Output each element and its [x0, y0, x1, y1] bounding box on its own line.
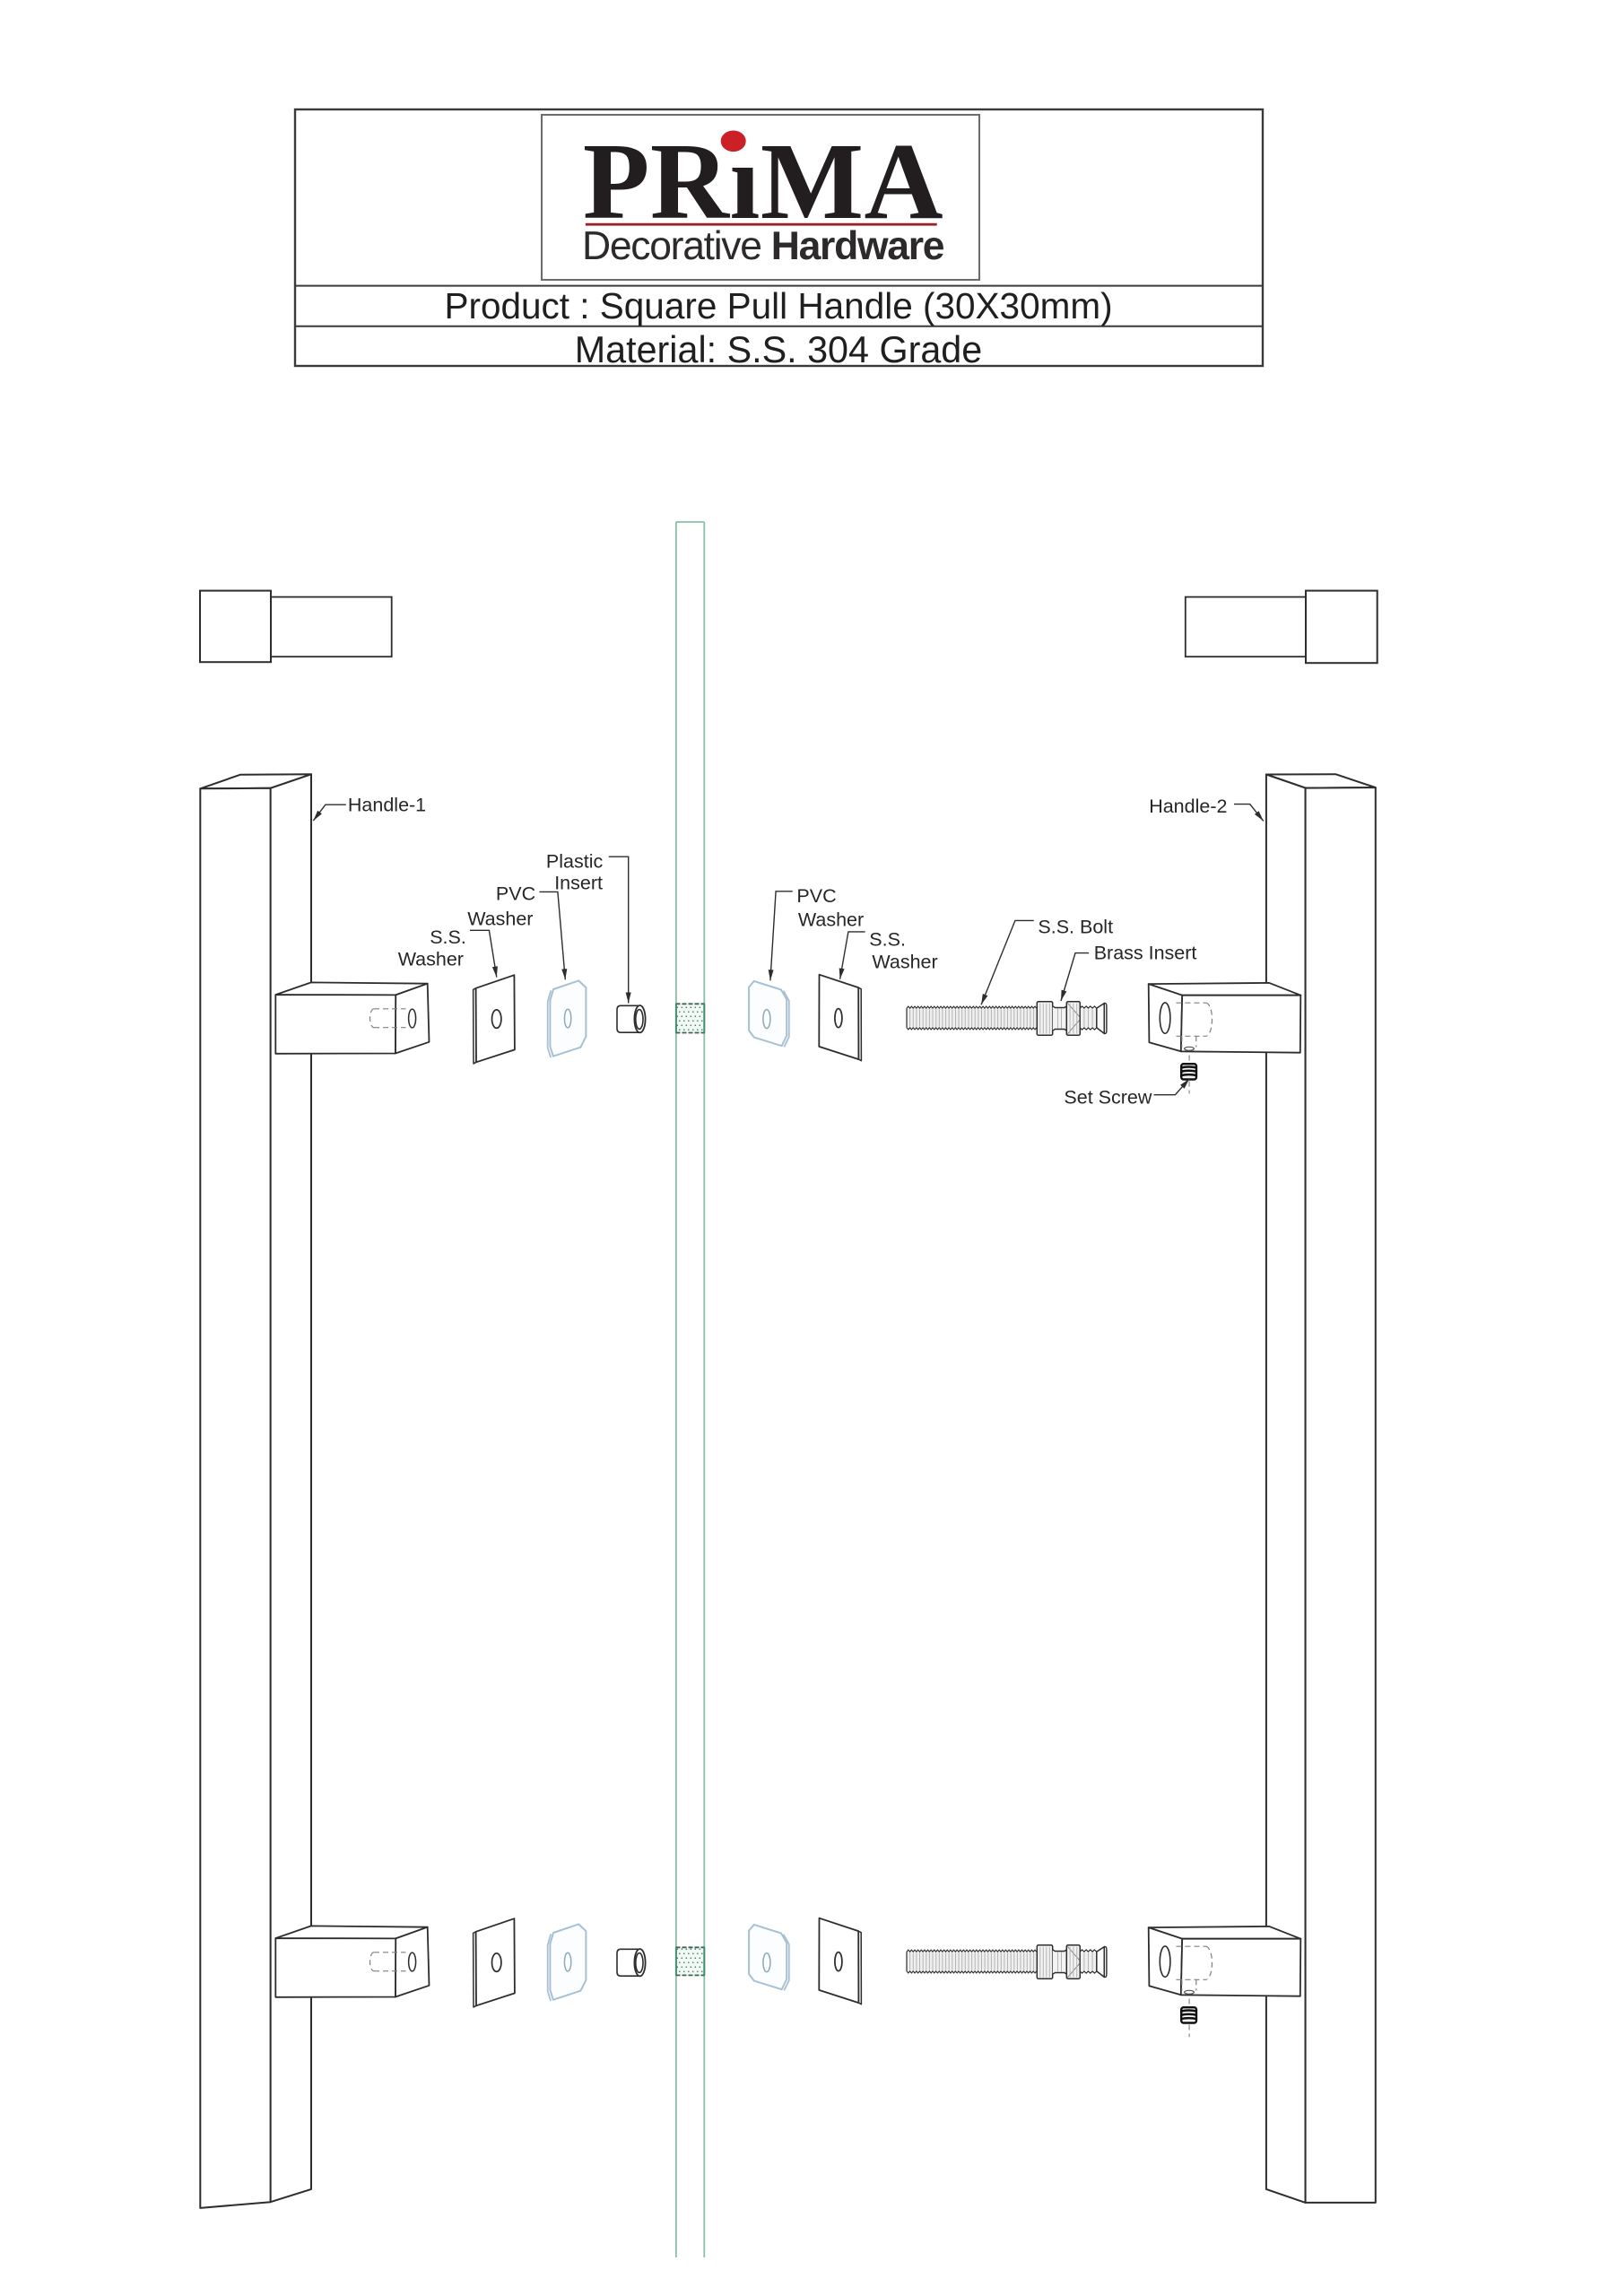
svg-text:S.S.: S.S. — [869, 928, 906, 950]
svg-text:PVC: PVC — [496, 883, 535, 905]
svg-text:Handle-1: Handle-1 — [348, 795, 426, 816]
svg-text:S.S. Bolt: S.S. Bolt — [1038, 916, 1113, 937]
svg-text:Washer: Washer — [467, 909, 533, 930]
svg-text:Washer: Washer — [398, 949, 464, 970]
svg-text:Product : Square Pull Handle (: Product : Square Pull Handle (30X30mm) — [444, 285, 1112, 326]
svg-text:Insert: Insert — [554, 873, 603, 894]
svg-text:S.S.: S.S. — [430, 926, 466, 948]
svg-text:Washer: Washer — [798, 909, 864, 931]
svg-text:Plastic: Plastic — [546, 850, 604, 872]
svg-text:Washer: Washer — [872, 951, 937, 972]
svg-text:Brass Insert: Brass Insert — [1094, 943, 1197, 964]
svg-text:Material: S.S. 304 Grade: Material: S.S. 304 Grade — [575, 329, 983, 370]
svg-text:Decorative Hardware: Decorative Hardware — [582, 224, 944, 268]
svg-text:Set Screw: Set Screw — [1064, 1087, 1152, 1109]
svg-text:Handle-2: Handle-2 — [1149, 796, 1227, 817]
svg-text:PVC: PVC — [796, 885, 836, 907]
